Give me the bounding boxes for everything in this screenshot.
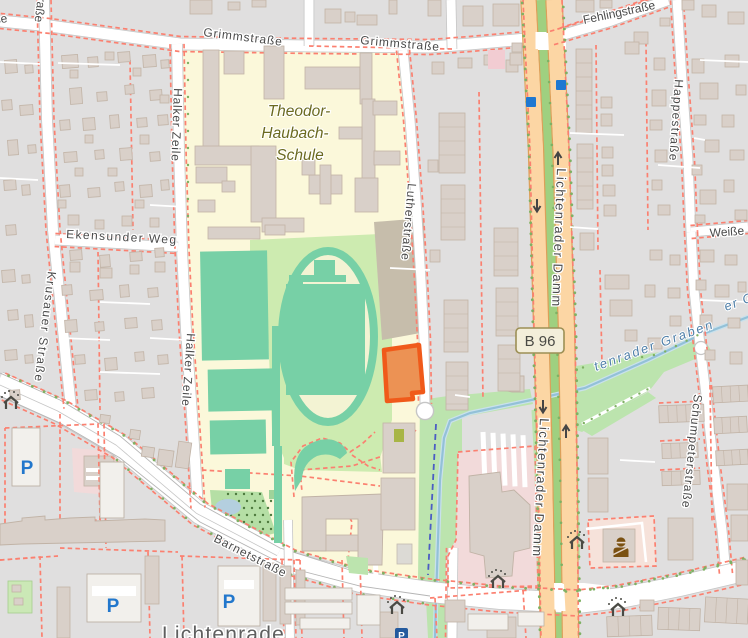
svg-text:P: P bbox=[21, 458, 34, 479]
svg-text:Weiße: Weiße bbox=[709, 224, 745, 240]
svg-text:Haubach-: Haubach- bbox=[261, 125, 328, 142]
svg-text:traße: traße bbox=[32, 0, 49, 23]
svg-text:B 96: B 96 bbox=[525, 333, 556, 350]
svg-text:Lichtenrade: Lichtenrade bbox=[162, 623, 285, 638]
svg-text:P: P bbox=[107, 596, 120, 617]
svg-text:P: P bbox=[398, 631, 405, 638]
svg-text:Theodor-: Theodor- bbox=[268, 103, 331, 120]
svg-text:Halker Zeile: Halker Zeile bbox=[168, 88, 185, 162]
svg-text:Schule: Schule bbox=[276, 147, 324, 164]
svg-text:P: P bbox=[223, 592, 236, 613]
